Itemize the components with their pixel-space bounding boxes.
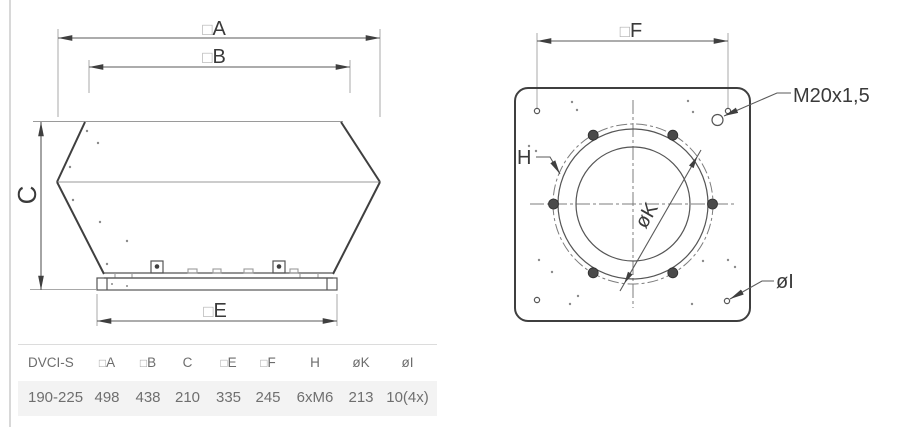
cell-a: 498 [86,381,128,416]
table-row: 190-225 498 438 210 335 245 6xM6 213 10(… [18,381,437,416]
h-leader-line [536,157,560,174]
housing-upper-right-slope [341,122,380,182]
i-callout: øI [730,271,794,299]
center-lines [530,100,736,308]
dimension-f: □F [537,20,728,108]
flange-bolt [549,199,559,209]
speck [72,199,74,201]
dimension-b-label: □B [202,46,226,68]
h-callout: H [517,147,560,174]
speck [702,260,704,262]
speck [538,259,540,261]
speck [551,271,553,273]
flange-bolt [708,199,718,209]
fan-housing-outline [33,122,380,275]
cell-i: 10(4x) [378,381,437,416]
corner-hole [724,298,729,303]
technical-drawing: □A □B [0,0,900,342]
table-header-row: DVCI-S □A □B C □E □F H øK øI [18,345,437,382]
cell-f: 245 [250,381,286,416]
product-dimension-page: { "drawing": { "side_view": { "dim_a": {… [0,0,900,427]
dimension-b: □B [89,46,350,93]
thread-callout: M20x1,5 [712,85,870,126]
flange-bolt [588,268,598,278]
dimension-c-label: C [12,186,42,205]
speck [692,111,694,113]
thread-leader-line [724,93,791,116]
dimension-f-label: □F [620,20,643,42]
thread-size-label: M20x1,5 [793,85,870,107]
dimension-e: □E [97,294,337,326]
speck [535,150,537,152]
cell-b: 438 [128,381,168,416]
i-leader-line [730,281,774,299]
dimension-h-label: H [517,147,531,169]
col-header-i: øI [378,345,437,382]
col-header-k: øK [344,345,378,382]
speck [691,303,693,305]
col-header-e: □E [207,345,250,382]
dimension-c: C [12,122,96,290]
dimension-i-label: øI [776,271,794,293]
cell-e: 335 [207,381,250,416]
cable-gland-hole [712,115,723,126]
cell-k: 213 [344,381,378,416]
base-plate [97,278,337,290]
speck [126,285,128,287]
dimension-k-label: øK [631,198,663,232]
speck [69,166,71,168]
dimension-a-label: □A [202,18,226,40]
speck [569,303,571,305]
corner-hole [534,297,539,302]
bracket-hole [277,264,282,269]
flange-bolt [668,130,678,140]
speck [687,100,689,102]
speck [126,240,128,242]
speck [528,145,530,147]
speck [111,283,113,285]
fan-bottom-view: □F øK [515,20,870,321]
speck [86,130,88,132]
speck [571,101,573,103]
housing-lower-right-slope [333,182,380,274]
col-header-h: H [286,345,344,382]
corner-hole [534,108,539,113]
housing-upper-left-slope [57,122,85,182]
speck [734,266,736,268]
dimension-table: DVCI-S □A □B C □E □F H øK øI 190-225 498… [18,344,437,416]
col-header-a: □A [86,345,128,382]
speck [727,259,729,261]
speck [106,263,108,265]
col-header-f: □F [250,345,286,382]
fan-side-view: □A □B [12,18,380,326]
speck [577,295,579,297]
bracket-hole [155,264,160,269]
speck [99,221,101,223]
cell-model: 190-225 [18,381,86,416]
speck [576,109,578,111]
col-header-model: DVCI-S [18,345,86,382]
flange-bolt [588,130,598,140]
speck [97,142,99,144]
flange-bolt [668,268,678,278]
cell-h: 6xM6 [286,381,344,416]
dimension-k: øK [620,150,701,291]
corner-hole [725,108,730,113]
housing-lower-left-slope [57,182,104,274]
dimension-e-label: □E [203,300,227,322]
base-assembly [97,261,337,290]
col-header-b: □B [128,345,168,382]
col-header-c: C [168,345,207,382]
cell-c: 210 [168,381,207,416]
